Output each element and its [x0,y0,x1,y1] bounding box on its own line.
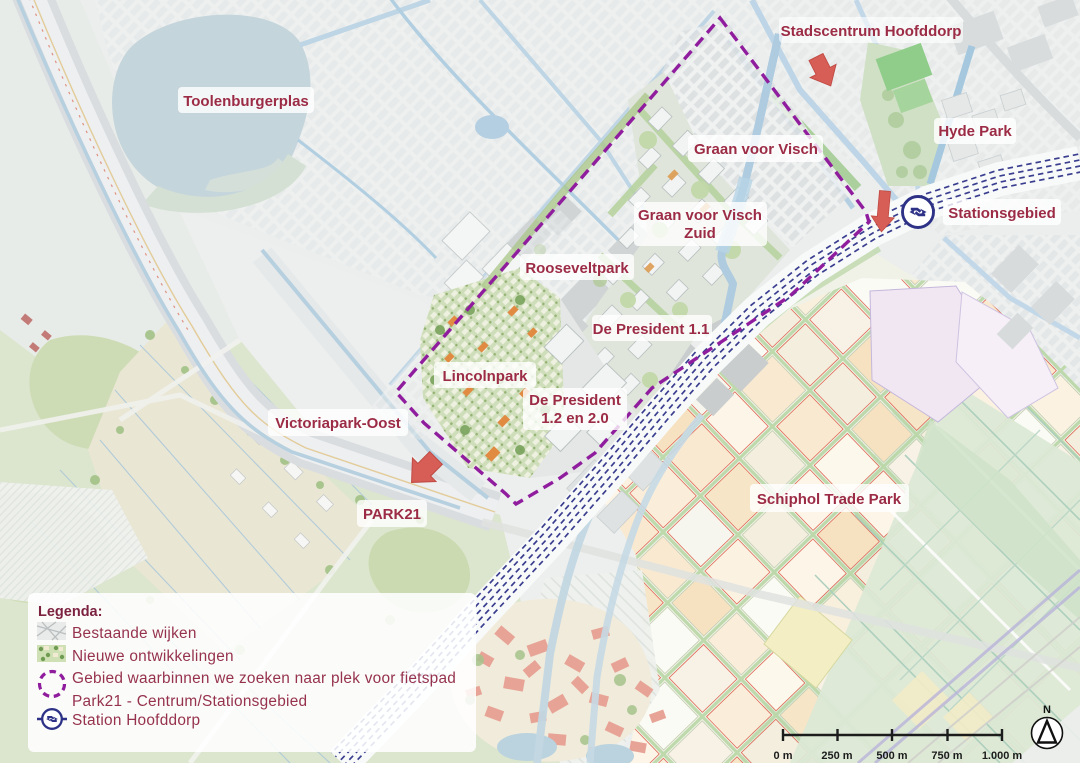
svg-text:De President 1.1: De President 1.1 [593,321,710,338]
svg-text:Toolenburgerplas: Toolenburgerplas [183,93,309,110]
svg-text:Graan voor Visch: Graan voor Visch [638,207,762,224]
svg-text:PARK21: PARK21 [363,506,421,523]
svg-text:Victoriapark-Oost: Victoriapark-Oost [275,415,401,432]
svg-text:Nieuwe ontwikkelingen: Nieuwe ontwikkelingen [72,648,234,665]
svg-text:Bestaande wijken: Bestaande wijken [72,625,197,642]
svg-text:Graan voor Visch: Graan voor Visch [694,141,818,158]
svg-text:Zuid: Zuid [684,225,716,242]
svg-text:750 m: 750 m [931,750,962,762]
svg-text:Schiphol Trade Park: Schiphol Trade Park [757,491,902,508]
svg-text:N: N [1043,704,1051,716]
svg-text:Rooseveltpark: Rooseveltpark [525,260,629,277]
svg-text:Park21 - Centrum/Stationsgebie: Park21 - Centrum/Stationsgebied [72,693,307,710]
svg-text:Station Hoofddorp: Station Hoofddorp [72,712,200,729]
svg-text:Stationsgebied: Stationsgebied [948,205,1056,222]
svg-text:Lincolnpark: Lincolnpark [442,368,528,385]
svg-text:De President: De President [529,392,621,409]
svg-text:1.2 en 2.0: 1.2 en 2.0 [541,410,609,427]
svg-text:1.000 m: 1.000 m [982,750,1023,762]
svg-text:Gebied waarbinnen we zoeken na: Gebied waarbinnen we zoeken naar plek vo… [72,670,456,687]
svg-text:Legenda:: Legenda: [38,604,102,620]
svg-text:250 m: 250 m [821,750,852,762]
svg-text:500 m: 500 m [876,750,907,762]
svg-text:0 m: 0 m [774,750,793,762]
svg-text:Hyde Park: Hyde Park [938,123,1012,140]
svg-text:Stadscentrum Hoofddorp: Stadscentrum Hoofddorp [781,23,962,40]
